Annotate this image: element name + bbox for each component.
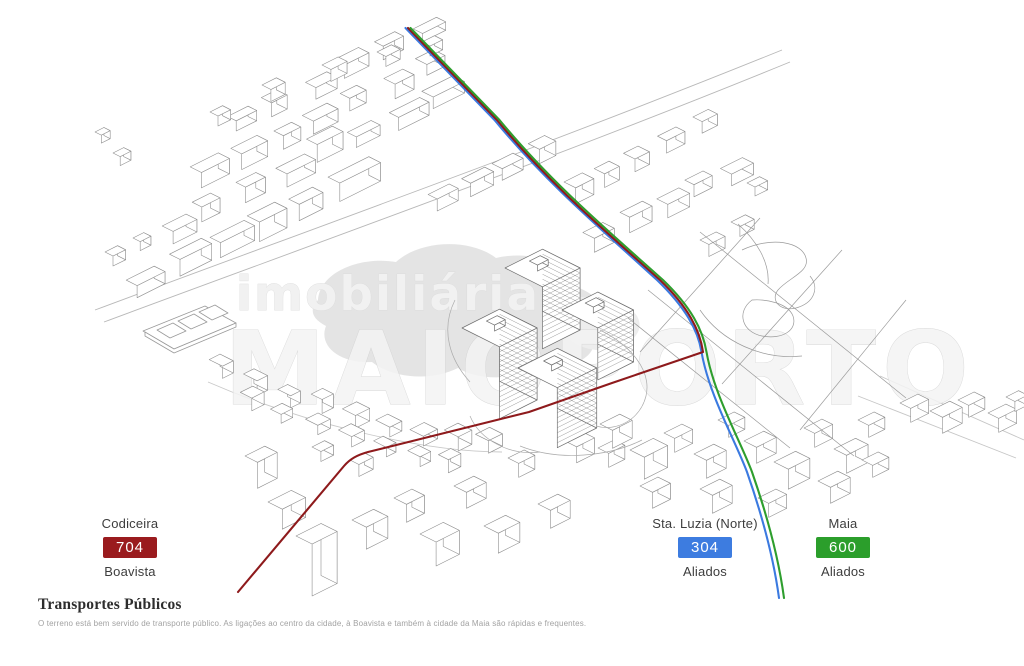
transit-stop-sta-luzia: Sta. Luzia (Norte) 304 Aliados — [625, 516, 785, 579]
building-cluster-layer — [95, 17, 1024, 596]
line-number-badge: 304 — [678, 537, 732, 558]
stop-destination: Boavista — [50, 564, 210, 579]
stop-name: Maia — [763, 516, 923, 531]
footer: Transportes Públicos O terreno está bem … — [38, 596, 678, 628]
transit-stop-codiceira: Codiceira 704 Boavista — [50, 516, 210, 579]
line-number-badge: 704 — [103, 537, 157, 558]
stop-destination: Aliados — [625, 564, 785, 579]
transit-stop-maia: Maia 600 Aliados — [763, 516, 923, 579]
section-title: Transportes Públicos — [38, 596, 678, 614]
site-transport-map: imobiliária MAIOPORTO — [0, 0, 1024, 666]
stop-name: Sta. Luzia (Norte) — [625, 516, 785, 531]
section-description: O terreno está bem servido de transporte… — [38, 619, 678, 628]
stop-name: Codiceira — [50, 516, 210, 531]
slab-structure — [143, 305, 236, 353]
line-number-badge: 600 — [816, 537, 870, 558]
stop-destination: Aliados — [763, 564, 923, 579]
